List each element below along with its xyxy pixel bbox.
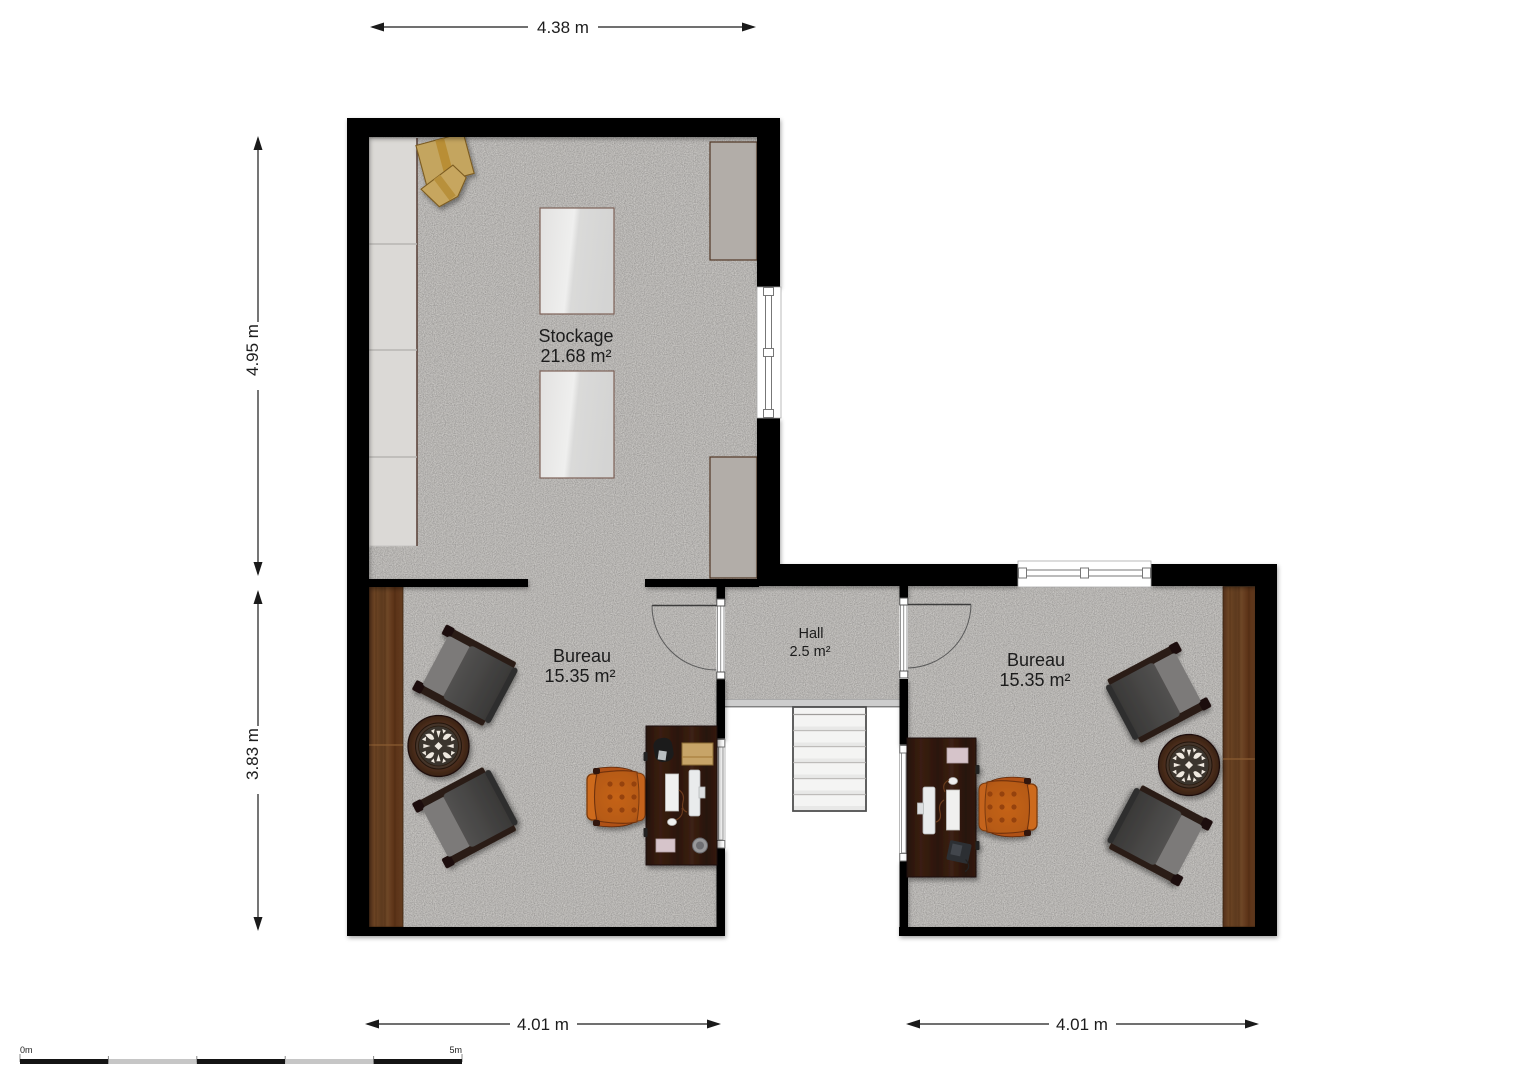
svg-text:5m: 5m [449,1045,462,1055]
svg-text:Hall: Hall [799,626,824,642]
svg-text:4.95 m: 4.95 m [243,324,262,376]
svg-text:21.68 m²: 21.68 m² [540,346,611,366]
svg-text:2.5 m²: 2.5 m² [789,644,830,660]
svg-text:0m: 0m [20,1045,33,1055]
svg-text:3.83 m: 3.83 m [243,728,262,780]
svg-text:15.35 m²: 15.35 m² [544,666,615,686]
svg-text:Bureau: Bureau [553,646,611,666]
svg-text:4.01 m: 4.01 m [1056,1015,1108,1034]
svg-text:4.38 m: 4.38 m [537,18,589,37]
svg-text:15.35 m²: 15.35 m² [999,670,1070,690]
svg-text:Bureau: Bureau [1007,650,1065,670]
svg-text:4.01 m: 4.01 m [517,1015,569,1034]
svg-text:Stockage: Stockage [538,326,613,346]
